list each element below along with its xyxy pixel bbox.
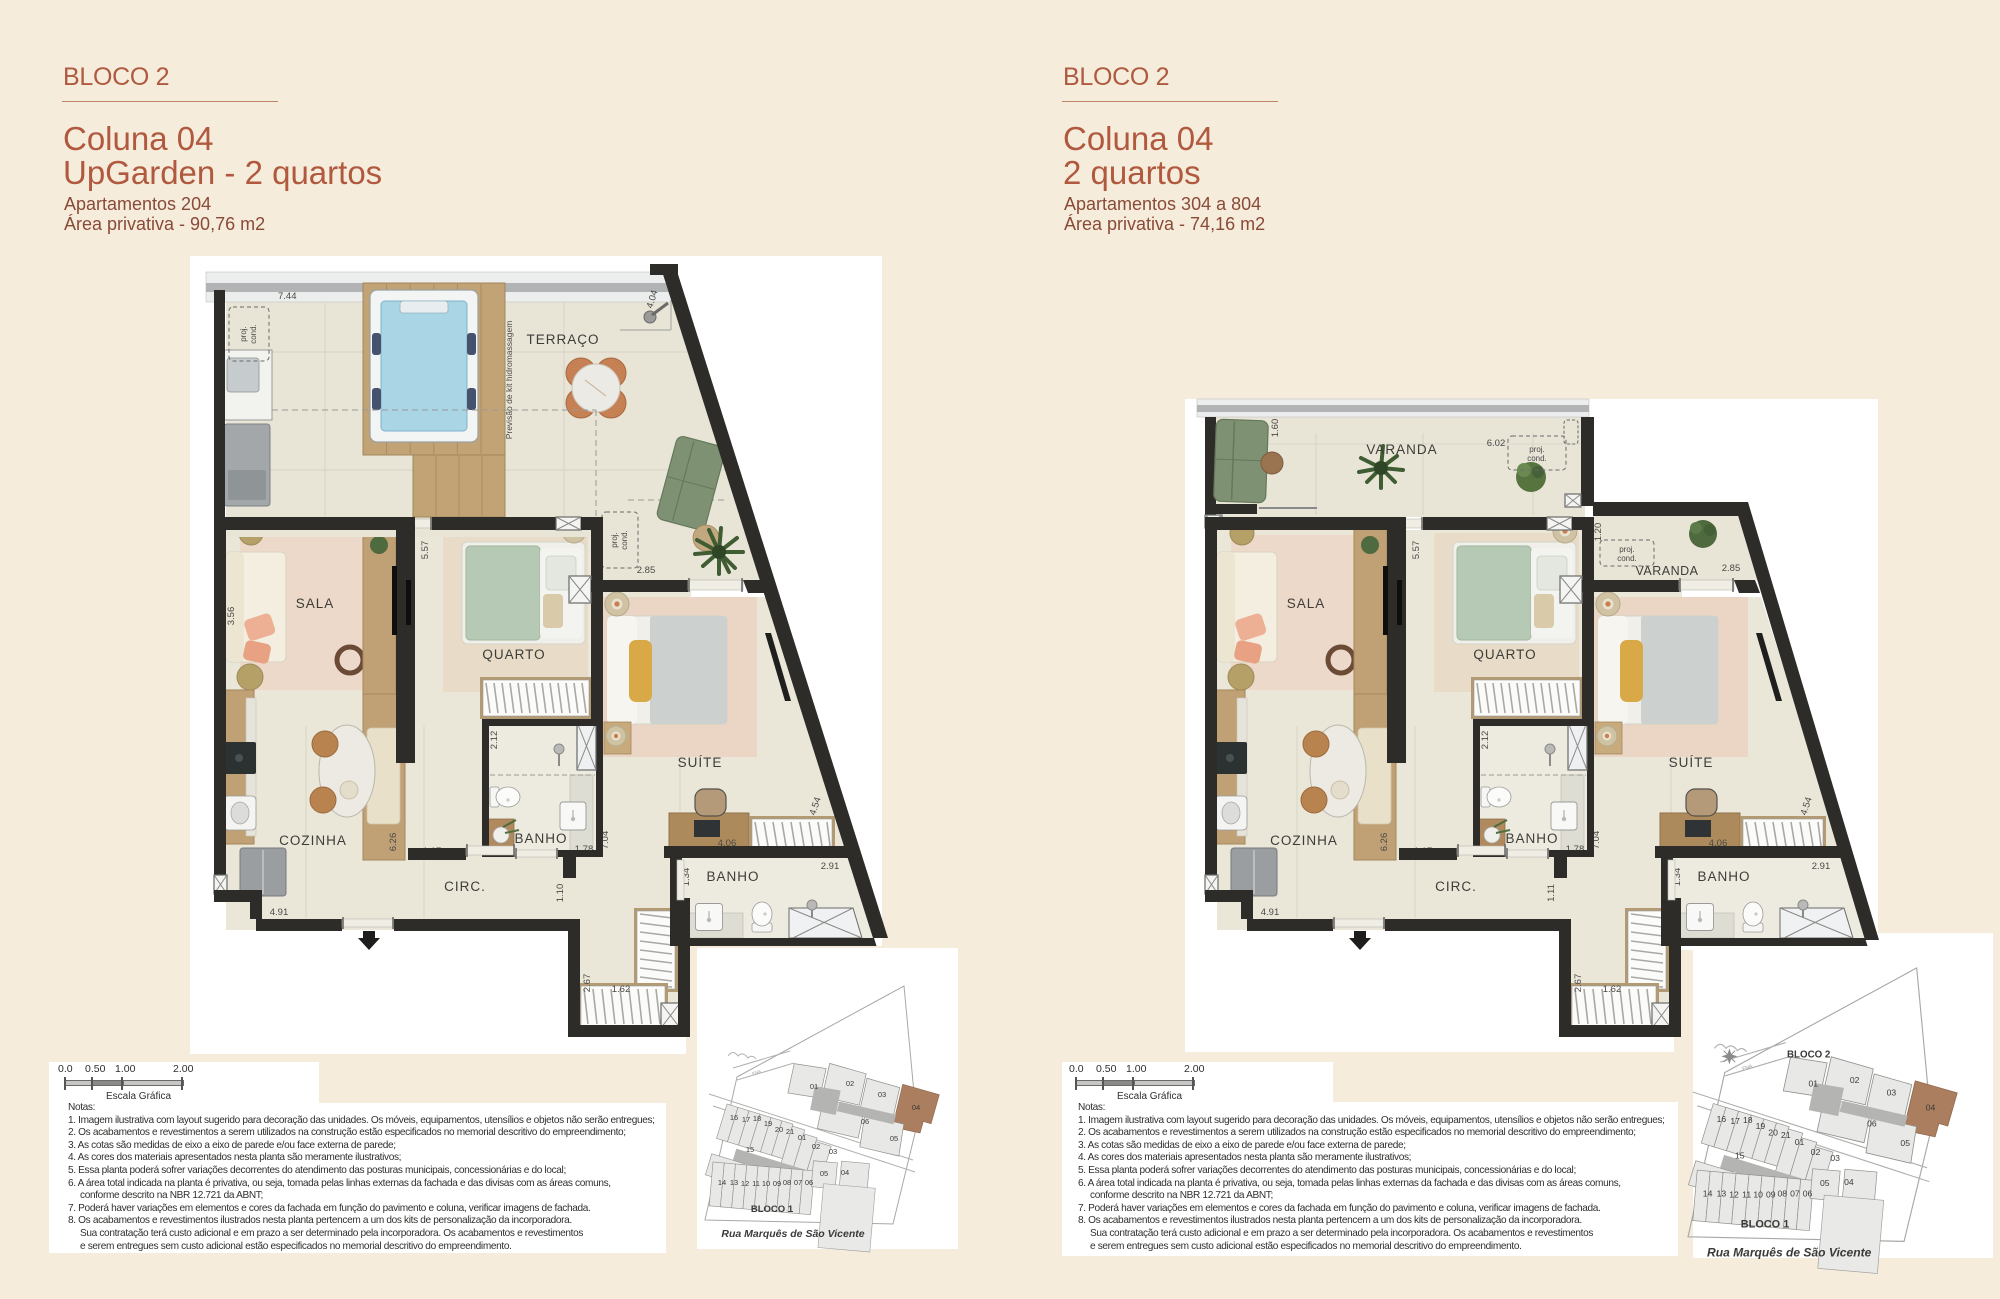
svg-text:02: 02 [1850,1075,1860,1085]
svg-text:14: 14 [718,1178,726,1187]
svg-text:1.11: 1.11 [1546,884,1557,902]
svg-text:18: 18 [1743,1115,1753,1125]
svg-text:2.91: 2.91 [821,861,840,872]
svg-text:01: 01 [810,1082,818,1091]
svg-text:QUARTO: QUARTO [1473,647,1536,662]
svg-text:6.26: 6.26 [1379,833,1390,852]
svg-text:1.60: 1.60 [1270,419,1281,438]
svg-text:15: 15 [746,1145,754,1154]
svg-text:04: 04 [1926,1102,1936,1112]
svg-text:SUÍTE: SUÍTE [1669,755,1714,770]
svg-text:13: 13 [1717,1189,1727,1199]
svg-text:08: 08 [783,1178,791,1187]
svg-text:03: 03 [878,1090,886,1099]
svg-text:CIRC.: CIRC. [1435,879,1477,894]
svg-text:05: 05 [1820,1178,1830,1188]
svg-text:1.20: 1.20 [1593,523,1604,542]
svg-text:04: 04 [912,1103,920,1112]
svg-text:11: 11 [1742,1190,1751,1200]
svg-text:BANHO: BANHO [1697,869,1750,884]
svg-text:6.26: 6.26 [388,833,399,852]
svg-text:02: 02 [812,1142,820,1151]
svg-text:COZINHA: COZINHA [1270,833,1338,848]
svg-text:04: 04 [1844,1177,1854,1187]
svg-text:1.62: 1.62 [1603,984,1622,995]
svg-text:proj.: proj. [610,532,619,548]
svg-text:19: 19 [764,1119,772,1128]
svg-text:BLOCO 1: BLOCO 1 [751,1204,794,1215]
svg-text:BANHO: BANHO [514,831,567,846]
svg-text:11: 11 [752,1179,760,1188]
svg-text:proj.: proj. [239,326,248,342]
svg-text:07: 07 [1790,1189,1800,1199]
svg-text:SALA: SALA [296,596,335,611]
svg-text:03: 03 [1887,1087,1897,1097]
svg-text:06: 06 [1867,1118,1877,1128]
svg-text:2.67: 2.67 [582,974,593,993]
svg-text:BANHO: BANHO [706,869,759,884]
svg-text:cond.: cond. [620,530,629,550]
svg-text:01: 01 [1795,1137,1805,1147]
svg-text:09: 09 [1766,1190,1776,1200]
svg-text:16: 16 [1717,1114,1727,1124]
svg-text:cond.: cond. [249,324,258,344]
svg-text:03: 03 [1830,1153,1840,1163]
svg-text:13: 13 [730,1178,738,1187]
svg-text:12: 12 [741,1179,749,1188]
svg-text:1.10: 1.10 [555,884,566,903]
svg-text:15: 15 [1735,1151,1745,1161]
svg-text:01: 01 [798,1133,806,1142]
svg-text:05: 05 [890,1134,898,1143]
svg-text:20: 20 [775,1125,783,1134]
svg-text:12: 12 [1729,1190,1739,1200]
svg-text:14: 14 [1703,1189,1713,1199]
svg-text:cond.: cond. [1527,454,1547,463]
svg-text:2.67: 2.67 [1573,974,1584,993]
svg-text:05: 05 [820,1169,828,1178]
svg-text:18: 18 [753,1114,761,1123]
svg-text:01: 01 [1808,1078,1818,1088]
svg-text:19: 19 [1756,1121,1766,1131]
svg-text:BLOCO 1: BLOCO 1 [1741,1219,1789,1231]
svg-text:04: 04 [841,1168,849,1177]
svg-text:SALA: SALA [1287,596,1326,611]
svg-text:09: 09 [773,1179,781,1188]
svg-text:SUÍTE: SUÍTE [678,755,723,770]
svg-text:16: 16 [730,1113,738,1122]
svg-text:05: 05 [1900,1138,1910,1148]
svg-text:Previsão de kit hidromassagem: Previsão de kit hidromassagem [504,321,514,440]
svg-text:17: 17 [742,1115,750,1124]
svg-text:17: 17 [1730,1116,1740,1126]
svg-text:2.12: 2.12 [489,731,500,750]
svg-text:06: 06 [1803,1189,1813,1199]
svg-text:proj.: proj. [1529,445,1545,454]
svg-text:2.91: 2.91 [1812,861,1831,872]
svg-text:VARANDA: VARANDA [1366,442,1437,457]
svg-text:2.12: 2.12 [1480,731,1491,750]
svg-text:COZINHA: COZINHA [279,833,347,848]
svg-text:QUARTO: QUARTO [482,647,545,662]
svg-text:proj.: proj. [1619,545,1635,554]
svg-text:4.91: 4.91 [1261,907,1280,918]
svg-text:07: 07 [794,1178,802,1187]
svg-text:BLOCO 2: BLOCO 2 [1787,1050,1831,1061]
svg-text:21: 21 [1781,1130,1791,1140]
svg-text:Rua Marquês de São Vicente: Rua Marquês de São Vicente [1707,1245,1872,1259]
svg-text:TERRAÇO: TERRAÇO [526,332,599,347]
svg-text:cond.: cond. [1617,554,1637,563]
svg-text:2.85: 2.85 [1722,563,1741,574]
svg-text:2.85: 2.85 [637,565,656,576]
svg-text:02: 02 [846,1079,854,1088]
svg-text:6.02: 6.02 [1487,438,1506,449]
svg-text:3.56: 3.56 [226,607,237,626]
svg-text:20: 20 [1768,1128,1778,1138]
svg-text:4.91: 4.91 [270,907,289,918]
svg-text:7.44: 7.44 [278,291,297,302]
svg-text:06: 06 [861,1117,869,1126]
svg-text:21: 21 [786,1127,794,1136]
svg-text:CIRC.: CIRC. [444,879,486,894]
svg-text:02: 02 [1811,1147,1821,1157]
svg-text:5.57: 5.57 [1411,541,1422,560]
svg-text:Rua Marquês de São Vicente: Rua Marquês de São Vicente [721,1228,864,1240]
svg-text:10: 10 [762,1179,770,1188]
svg-text:1.62: 1.62 [612,984,631,995]
svg-text:08: 08 [1777,1189,1787,1199]
svg-text:5.57: 5.57 [420,541,431,560]
svg-text:06: 06 [805,1178,813,1187]
svg-text:VARANDA: VARANDA [1635,564,1698,578]
svg-text:10: 10 [1753,1190,1763,1200]
svg-text:BANHO: BANHO [1505,831,1558,846]
svg-text:03: 03 [829,1147,837,1156]
